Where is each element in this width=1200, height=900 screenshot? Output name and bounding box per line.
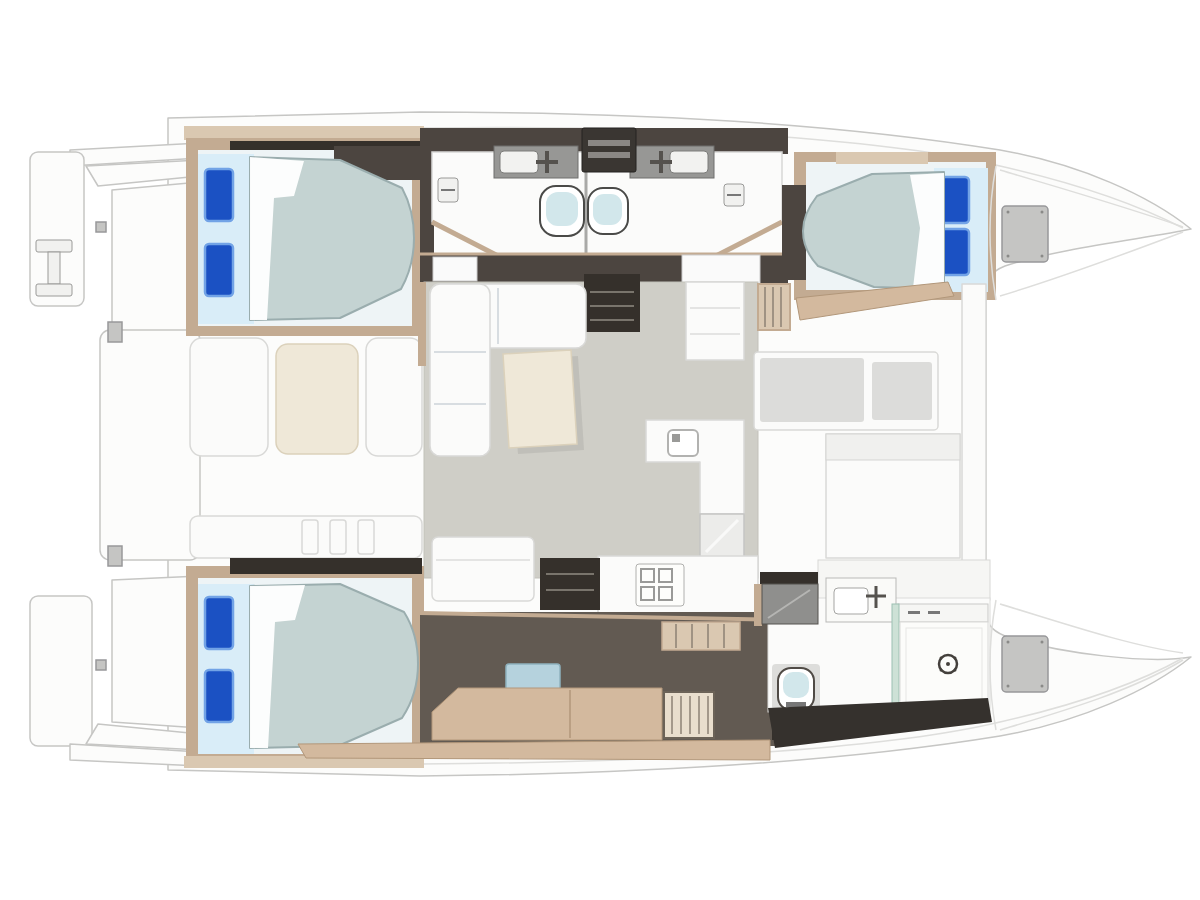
hatch-screw: [1041, 211, 1044, 214]
deck-trim: [836, 152, 928, 164]
mast-block: [582, 128, 636, 172]
cleat: [96, 222, 106, 232]
floor-plan-canvas: [0, 0, 1200, 900]
slatted-locker: [664, 692, 714, 738]
steps-down: [584, 274, 640, 332]
table-edge: [826, 434, 960, 460]
steps-wood: [758, 284, 790, 330]
seat-cushion: [760, 358, 864, 422]
forward-port-cabin: [782, 152, 996, 300]
deck-trim: [184, 126, 424, 140]
pillow: [941, 177, 969, 223]
mast-detail: [588, 152, 630, 158]
sink-faucet: [672, 434, 680, 442]
nav-cabinet: [686, 282, 744, 360]
pillow: [941, 229, 969, 275]
hatch-screw: [1041, 641, 1044, 644]
stern-platforms: [30, 143, 200, 766]
chaise-lounge: [432, 688, 662, 740]
cockpit-cushion: [366, 338, 422, 456]
pillow: [205, 670, 233, 722]
shower-glass: [892, 604, 899, 712]
drain-dot: [954, 657, 957, 660]
owner-vanity: [826, 578, 896, 622]
cooktop: [636, 564, 684, 606]
toilet: [588, 188, 628, 234]
stairs-block: [584, 274, 640, 332]
port-heads: [420, 128, 788, 268]
cleat: [96, 660, 106, 670]
aft-port-cabin: [184, 126, 434, 336]
owner-cabin: [184, 558, 424, 768]
davit-bar: [36, 240, 72, 252]
owner-toilet: [772, 664, 820, 710]
counter-handle: [928, 611, 940, 614]
shower: [900, 622, 988, 710]
saloon-daybed: [432, 537, 534, 601]
vanity-left: [494, 146, 578, 178]
toilet: [540, 186, 584, 236]
cabin-door: [433, 257, 477, 281]
saloon-table: [503, 350, 577, 448]
bow-locker-hatch: [1002, 206, 1048, 262]
seat-cushion: [872, 362, 932, 420]
drain-dot: [946, 662, 950, 666]
bench-post: [302, 520, 318, 554]
step-handle: [108, 546, 122, 566]
steps-wood: [662, 622, 740, 650]
davit-bar: [36, 284, 72, 296]
toilet-seat: [783, 672, 809, 698]
hatch-screw: [1007, 641, 1010, 644]
pillow: [205, 597, 233, 649]
pillow: [205, 169, 233, 221]
drain-dot: [954, 669, 957, 672]
vanity-right: [630, 146, 714, 178]
shower-floor: [900, 622, 988, 710]
aft-cockpit: [190, 338, 422, 558]
entry-trim: [754, 584, 762, 626]
bow-locker-hatch: [1002, 636, 1048, 692]
vanity-basin: [834, 588, 868, 614]
transom-platform: [100, 330, 200, 560]
sofa-seat: [430, 284, 490, 456]
drain-dot: [940, 669, 943, 672]
drain-dot: [940, 657, 943, 660]
cockpit-cushion-cream: [276, 344, 358, 454]
pillow: [205, 244, 233, 296]
davit-stem: [48, 252, 60, 284]
cabin-wall: [230, 558, 422, 574]
bench-post: [358, 520, 374, 554]
stairs-block: [540, 558, 600, 610]
catamaran-floor-plan: [0, 0, 1200, 900]
cockpit-cushion: [190, 338, 268, 456]
hatch-screw: [1041, 685, 1044, 688]
toilet-seat: [593, 194, 622, 225]
hatch-screw: [1007, 255, 1010, 258]
bench-post: [330, 520, 346, 554]
galley-sink: [668, 430, 698, 456]
mast-step: [582, 128, 636, 172]
toilet-hinge: [786, 702, 806, 707]
stern-frame-lower: [30, 596, 92, 746]
saloon-wall-trim: [418, 282, 426, 366]
vanity-basin: [670, 151, 708, 173]
mast-detail: [588, 140, 630, 146]
counter-handle: [908, 611, 920, 614]
owner-bathroom: [754, 560, 992, 748]
hatch-screw: [1007, 211, 1010, 214]
hull-steps: [662, 622, 740, 650]
companionway-steps: [758, 284, 790, 330]
bathroom-wall-dark: [760, 572, 818, 584]
hatch-screw: [1041, 255, 1044, 258]
hull-side-trim: [298, 740, 770, 760]
toilet-seat: [546, 192, 578, 226]
galley-steps: [540, 558, 600, 610]
hatch-screw: [1007, 685, 1010, 688]
vanity-basin: [500, 151, 538, 173]
step-handle: [108, 322, 122, 342]
